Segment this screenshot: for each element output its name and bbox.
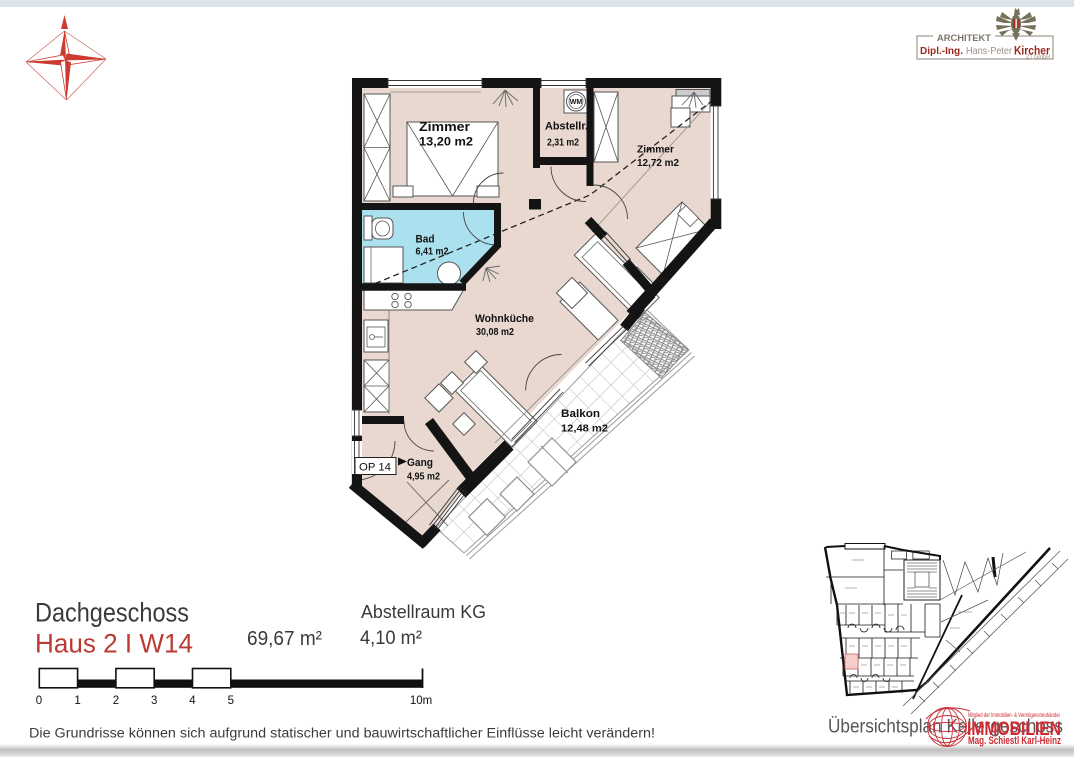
svg-text:OP 14: OP 14 [359,462,391,474]
svg-text:WM: WM [570,99,583,106]
svg-text:Hans-Peter: Hans-Peter [966,45,1012,57]
svg-text:2,31 m2: 2,31 m2 [547,138,579,149]
svg-text:Zimmer: Zimmer [419,119,470,134]
svg-text:Dipl.-Ing.: Dipl.-Ing. [920,45,963,57]
svg-text:6,41 m2: 6,41 m2 [416,247,449,258]
svg-text:Dachgeschoss: Dachgeschoss [35,598,189,628]
svg-text:ZT GmbH: ZT GmbH [1026,55,1050,61]
svg-text:30,08 m2: 30,08 m2 [476,327,514,338]
svg-text:Bad: Bad [416,234,435,246]
svg-text:10m: 10m [410,695,432,707]
svg-text:Zimmer: Zimmer [637,145,674,156]
svg-text:Wohnküche: Wohnküche [475,313,534,325]
svg-text:12,72 m2: 12,72 m2 [637,158,679,169]
svg-text:Abstellr.: Abstellr. [545,121,588,133]
svg-text:5: 5 [228,695,234,707]
svg-text:ARCHITEKT: ARCHITEKT [937,33,991,44]
svg-text:1: 1 [74,695,80,707]
svg-text:4,95 m2: 4,95 m2 [407,472,440,483]
svg-text:12,48 m2: 12,48 m2 [561,424,608,435]
svg-text:69,67 m²: 69,67 m² [247,627,322,650]
svg-text:3: 3 [151,695,157,707]
svg-text:Haus 2 I W14: Haus 2 I W14 [35,629,193,659]
svg-text:Die Grundrisse können sich auf: Die Grundrisse können sich aufgrund stat… [29,726,655,741]
svg-text:Gang: Gang [407,457,433,469]
svg-text:Balkon: Balkon [561,408,600,420]
svg-text:Abstellraum KG: Abstellraum KG [361,601,486,622]
svg-text:Mag. Schiestl Karl-Heinz: Mag. Schiestl Karl-Heinz [968,735,1061,747]
svg-text:4: 4 [189,695,196,707]
svg-text:2: 2 [113,695,119,707]
svg-text:4,10 m²: 4,10 m² [360,628,422,649]
svg-text:0: 0 [36,695,42,707]
svg-text:13,20 m2: 13,20 m2 [419,137,473,149]
